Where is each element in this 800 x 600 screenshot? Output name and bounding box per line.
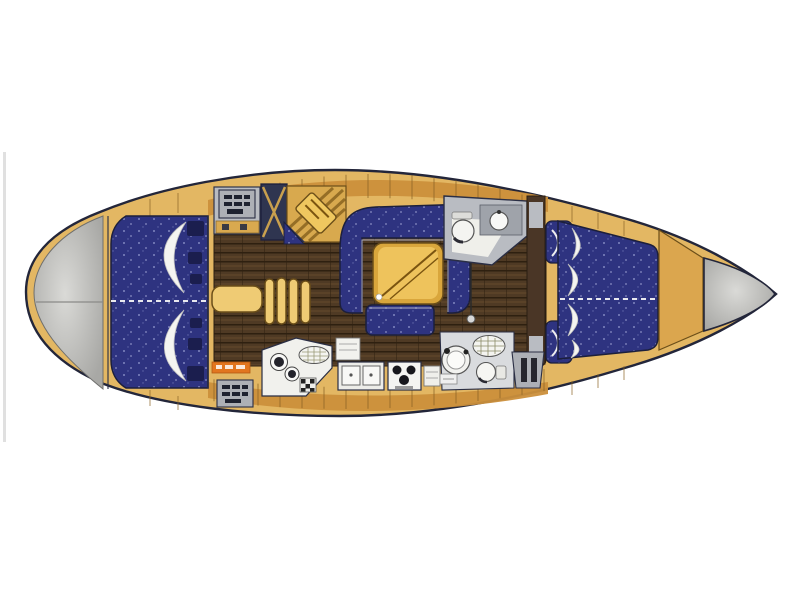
galley-oven [424, 366, 440, 386]
scan-edge-artifact [3, 152, 6, 442]
deck-hatch-bottom [217, 380, 253, 407]
forward-bulkhead [527, 196, 545, 364]
salon-bench [366, 305, 434, 335]
galley-panel [336, 338, 360, 360]
brand-label-strip [212, 362, 250, 373]
forward-head-sink [490, 212, 508, 230]
aft-head-shower-grate [473, 336, 505, 357]
deck-hatch-top [219, 190, 255, 218]
aft-head [440, 332, 514, 390]
galley-checker-grate [300, 378, 316, 392]
galley-stove [388, 362, 421, 390]
galley-oval-grate [299, 347, 329, 364]
boat-floorplan-canvas [0, 0, 800, 600]
faucet-dot [497, 210, 501, 214]
nav-station [284, 186, 346, 244]
wardrobe-locker [261, 184, 287, 240]
cockpit-hatch [512, 352, 544, 388]
floorplan-svg [0, 0, 800, 600]
galley-double-sink [338, 362, 384, 390]
salon-table [373, 243, 443, 304]
pole-foot [467, 315, 475, 323]
